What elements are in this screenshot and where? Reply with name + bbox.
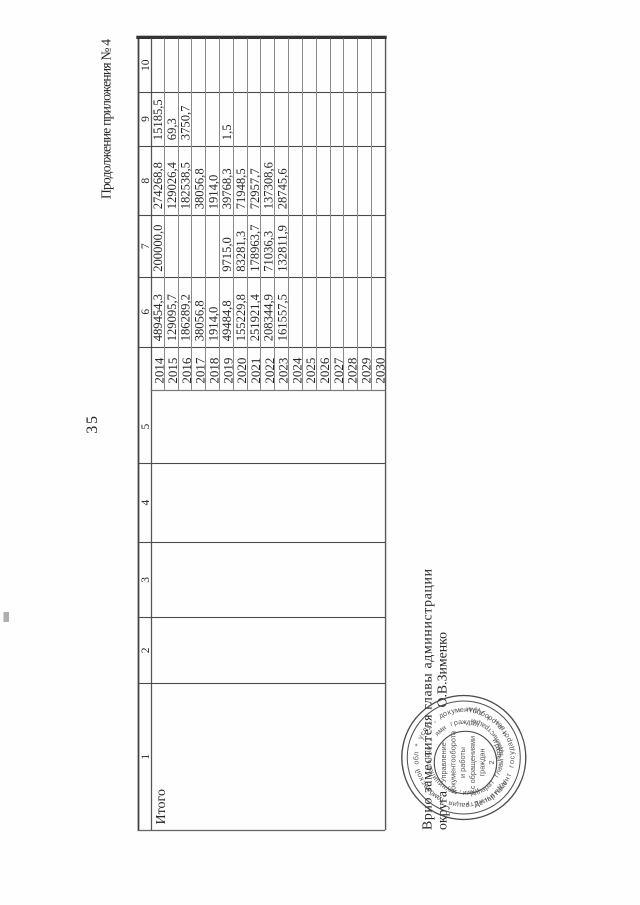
svg-text:2019: 2019 xyxy=(220,358,235,384)
svg-text:,: , xyxy=(459,789,462,796)
svg-text:39768,3: 39768,3 xyxy=(220,168,234,209)
svg-text:129095,7: 129095,7 xyxy=(165,294,179,341)
svg-text:28745,6: 28745,6 xyxy=(275,168,289,209)
svg-text:72957,7: 72957,7 xyxy=(248,168,262,209)
svg-text:и: и xyxy=(470,717,476,725)
svg-text:71948,5: 71948,5 xyxy=(234,168,248,209)
svg-text:2023: 2023 xyxy=(276,358,291,384)
svg-text:15185,5: 15185,5 xyxy=(151,99,165,140)
svg-text:2020: 2020 xyxy=(234,358,249,384)
svg-text:2016: 2016 xyxy=(179,357,194,384)
svg-text:1914,0: 1914,0 xyxy=(206,175,220,210)
svg-text:2026: 2026 xyxy=(317,357,332,384)
svg-text:О.В.Зименко: О.В.Зименко xyxy=(435,632,450,708)
svg-text:Итого: Итого xyxy=(154,789,169,824)
svg-text:35: 35 xyxy=(84,414,101,434)
svg-text:2025: 2025 xyxy=(303,358,318,384)
svg-text:2: 2 xyxy=(140,647,152,653)
svg-text:2030: 2030 xyxy=(372,358,387,384)
svg-text:8: 8 xyxy=(140,178,152,184)
svg-text:л: л xyxy=(411,751,420,756)
svg-text:2015: 2015 xyxy=(165,358,180,384)
svg-text:38056,8: 38056,8 xyxy=(193,168,207,209)
svg-text:4: 4 xyxy=(140,499,152,505)
svg-text:83281,3: 83281,3 xyxy=(234,231,248,272)
svg-text:Управление: Управление xyxy=(439,742,448,783)
svg-text:6: 6 xyxy=(140,309,152,315)
svg-text:2018: 2018 xyxy=(207,358,222,384)
svg-text:с обращениями: с обращениями xyxy=(468,736,477,789)
svg-text:132811,9: 132811,9 xyxy=(275,225,289,272)
svg-text:2028: 2028 xyxy=(345,358,360,384)
svg-text:и работы: и работы xyxy=(458,747,467,778)
svg-text:186289,2: 186289,2 xyxy=(179,294,193,341)
svg-text:10: 10 xyxy=(140,59,152,71)
svg-text:274268,8: 274268,8 xyxy=(151,162,165,209)
svg-text:9715,0: 9715,0 xyxy=(220,237,234,272)
svg-text:182538,5: 182538,5 xyxy=(179,162,193,209)
svg-text:2024: 2024 xyxy=(289,357,304,384)
svg-text:71036,3: 71036,3 xyxy=(262,231,276,272)
svg-text:7: 7 xyxy=(140,243,152,249)
svg-text:5: 5 xyxy=(140,423,152,429)
svg-text:178963,7: 178963,7 xyxy=(248,225,262,272)
svg-text:1,5: 1,5 xyxy=(220,124,234,140)
svg-text:3750,7: 3750,7 xyxy=(179,106,193,141)
svg-text:2: 2 xyxy=(487,760,496,764)
svg-text:ы: ы xyxy=(498,758,505,764)
svg-text:129026,4: 129026,4 xyxy=(165,161,179,209)
svg-text:3: 3 xyxy=(140,577,152,583)
svg-text:2022: 2022 xyxy=(262,358,277,384)
svg-text:о: о xyxy=(507,759,516,764)
svg-text:200000,0: 200000,0 xyxy=(151,225,165,272)
svg-text:2029: 2029 xyxy=(359,358,374,384)
svg-text:208344,9: 208344,9 xyxy=(262,294,276,341)
svg-text:1914,0: 1914,0 xyxy=(206,307,220,342)
svg-text:137308,6: 137308,6 xyxy=(262,162,276,209)
svg-text:2017: 2017 xyxy=(193,357,208,384)
svg-text:489454,3: 489454,3 xyxy=(151,294,165,341)
svg-text:161557,5: 161557,5 xyxy=(275,294,289,341)
svg-text:и: и xyxy=(462,789,466,796)
svg-text:9: 9 xyxy=(140,116,152,122)
svg-text:и: и xyxy=(466,705,471,714)
svg-text:1: 1 xyxy=(140,754,152,760)
svg-text:Продолжение приложения № 4: Продолжение приложения № 4 xyxy=(99,39,114,199)
svg-text:38056,8: 38056,8 xyxy=(193,300,207,341)
svg-text:документооборота: документооборота xyxy=(449,730,458,794)
svg-text:49484,8: 49484,8 xyxy=(220,300,234,341)
svg-text:155229,8: 155229,8 xyxy=(234,294,248,341)
svg-text:2021: 2021 xyxy=(248,358,263,384)
svg-text:граждан: граждан xyxy=(477,748,486,776)
svg-text:2027: 2027 xyxy=(331,357,346,384)
svg-text:251921,4: 251921,4 xyxy=(248,293,262,341)
svg-text:69,3: 69,3 xyxy=(165,118,179,140)
svg-text:2014: 2014 xyxy=(151,357,166,384)
